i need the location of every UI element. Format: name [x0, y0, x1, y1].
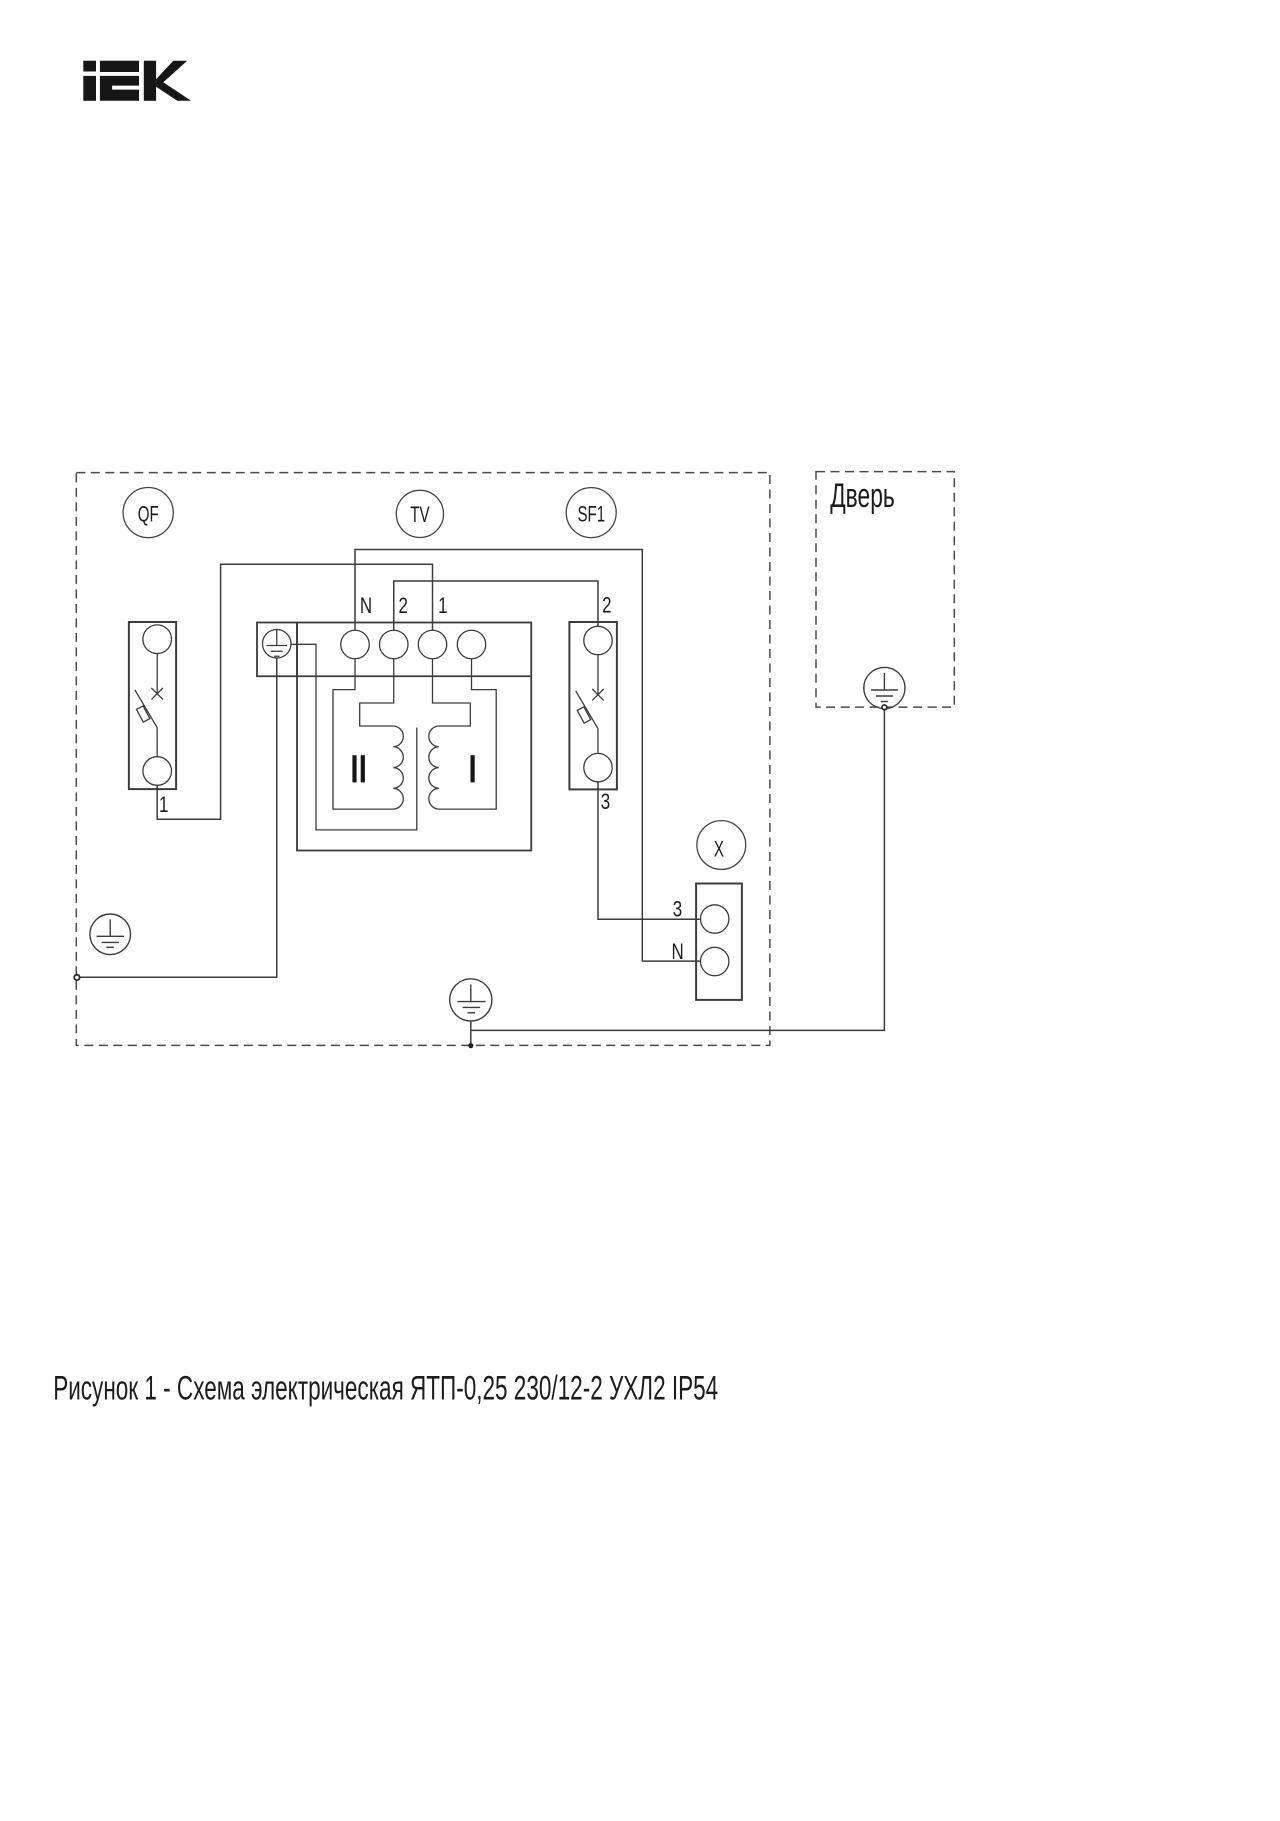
svg-text:Рисунок 1 - Схема электрическа: Рисунок 1 - Схема электрическая ЯТП-0,25… — [53, 1370, 718, 1408]
svg-text:Дверь: Дверь — [830, 477, 895, 515]
svg-text:1: 1 — [159, 793, 168, 818]
svg-text:2: 2 — [399, 594, 408, 619]
svg-text:3: 3 — [601, 790, 610, 815]
svg-text:1: 1 — [438, 594, 447, 619]
svg-text:2: 2 — [602, 593, 611, 618]
svg-text:X: X — [714, 838, 724, 863]
svg-text:TV: TV — [410, 503, 430, 528]
svg-text:N: N — [360, 594, 372, 619]
svg-text:3: 3 — [673, 897, 682, 922]
svg-text:QF: QF — [138, 503, 159, 528]
svg-text:N: N — [672, 940, 684, 965]
svg-text:SF1: SF1 — [577, 503, 605, 528]
